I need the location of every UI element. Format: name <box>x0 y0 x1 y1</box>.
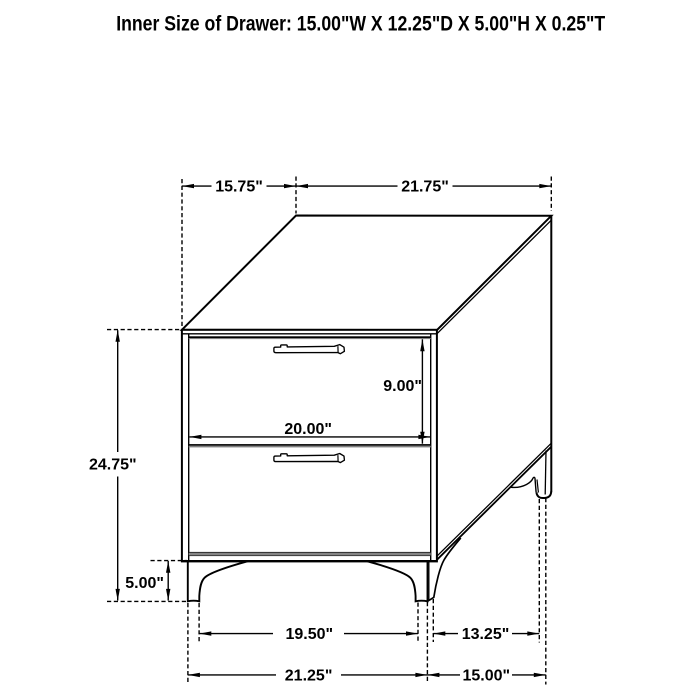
svg-text:21.75": 21.75" <box>401 179 449 196</box>
svg-text:15.00": 15.00" <box>462 667 510 684</box>
svg-text:9.00": 9.00" <box>383 378 422 395</box>
svg-text:24.75": 24.75" <box>89 457 137 474</box>
svg-text:Inner Size of Drawer: 15.00"W: Inner Size of Drawer: 15.00"W X 12.25"D … <box>116 12 605 35</box>
svg-text:13.25": 13.25" <box>462 626 510 643</box>
svg-text:15.75": 15.75" <box>215 179 263 196</box>
svg-text:21.25": 21.25" <box>285 667 333 684</box>
svg-text:19.50": 19.50" <box>285 626 333 643</box>
svg-text:5.00": 5.00" <box>125 575 164 592</box>
svg-text:20.00": 20.00" <box>284 421 332 438</box>
